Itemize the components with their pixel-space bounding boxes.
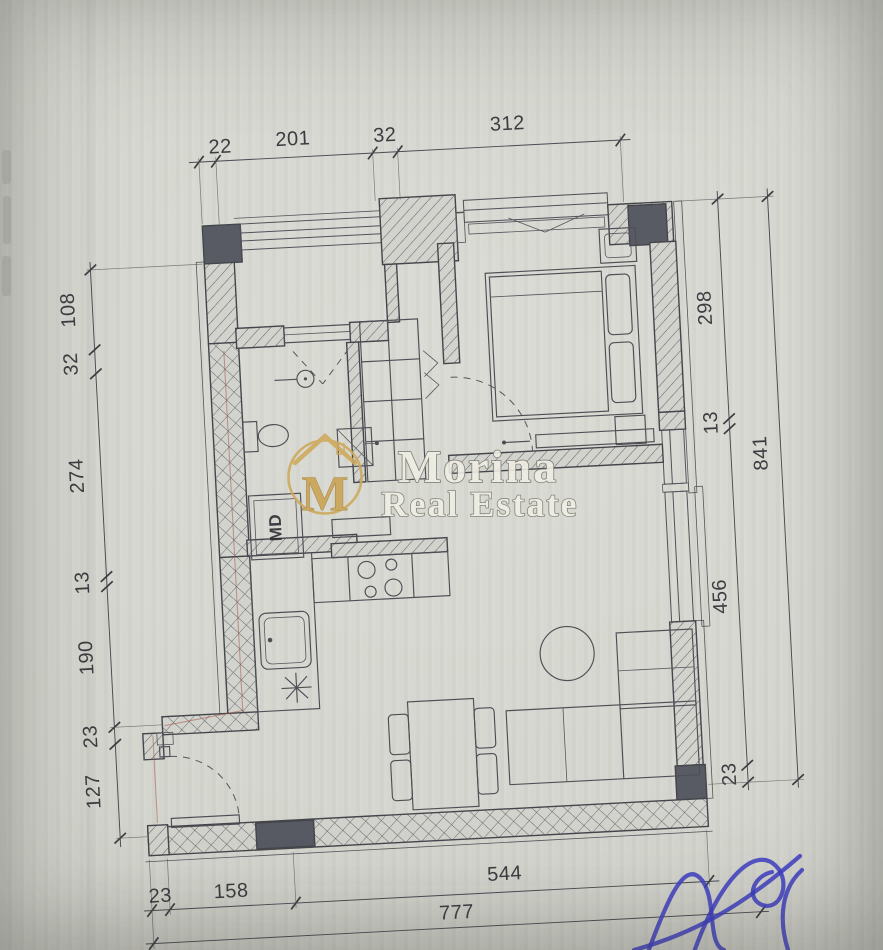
stove xyxy=(358,559,403,598)
column-bottom-right xyxy=(675,764,707,800)
dim-bottom-2: 544 xyxy=(487,862,523,886)
round-table xyxy=(539,625,596,682)
dim-top-0: 22 xyxy=(208,135,232,158)
chair xyxy=(474,707,496,748)
dim-left-2: 274 xyxy=(65,458,89,494)
dim-left-1: 32 xyxy=(60,352,83,376)
dim-right-1: 13 xyxy=(700,410,723,434)
dim-left-0: 108 xyxy=(57,292,81,328)
freezer-symbol xyxy=(281,672,313,704)
hanger-rod-icon xyxy=(423,350,439,399)
floor-plan-drawing: MD xyxy=(48,99,811,950)
pillow xyxy=(605,274,632,335)
dim-left-4: 190 xyxy=(75,640,99,676)
dim-left-6: 127 xyxy=(82,774,106,810)
hall-window xyxy=(234,211,385,251)
kitchen-sink xyxy=(259,611,312,670)
shower-head-icon xyxy=(274,370,314,389)
bedroom-window xyxy=(455,193,609,237)
watermark: M Morina Real Estate xyxy=(289,436,579,524)
bedroom xyxy=(483,227,654,451)
column-top-left xyxy=(202,224,242,264)
dim-top-1: 201 xyxy=(275,127,311,151)
chair xyxy=(391,760,413,801)
dim-right-0: 298 xyxy=(693,290,717,326)
dim-bottom-0: 23 xyxy=(148,885,172,908)
bedroom-side-window xyxy=(662,429,687,484)
bottom-wall xyxy=(148,798,709,855)
floor-plan-canvas: MD xyxy=(0,0,883,950)
dim-right-total: 841 xyxy=(749,435,773,471)
dim-top-2: 32 xyxy=(373,124,397,147)
dim-bottom-total: 777 xyxy=(439,901,475,925)
dining-table xyxy=(388,697,500,810)
column-bottom-center xyxy=(256,820,315,849)
paper-smudges xyxy=(2,150,11,296)
corner-sofa xyxy=(502,629,699,785)
watermark-brand-line2: Real Estate xyxy=(382,484,579,524)
chair xyxy=(476,753,498,794)
dim-right-2: 456 xyxy=(708,578,732,614)
dim-bottom-1: 158 xyxy=(213,880,249,904)
double-bed xyxy=(485,265,643,421)
living-room xyxy=(384,620,701,811)
dim-top-3: 312 xyxy=(489,112,525,136)
pillow xyxy=(609,342,636,403)
watermark-monogram: M xyxy=(301,465,348,521)
living-window xyxy=(665,486,710,628)
entry-door xyxy=(157,729,240,828)
kitchen-counter-top xyxy=(312,552,450,603)
toilet xyxy=(243,420,290,452)
dim-left-5: 23 xyxy=(79,724,102,748)
dim-left-3: 13 xyxy=(71,571,94,595)
signature xyxy=(634,856,802,950)
bath-door xyxy=(284,324,353,385)
chair xyxy=(388,714,410,755)
floor-plan-photo: MD xyxy=(0,0,883,950)
washing-machine-label: MD xyxy=(265,513,285,541)
column-top-right xyxy=(628,204,668,246)
